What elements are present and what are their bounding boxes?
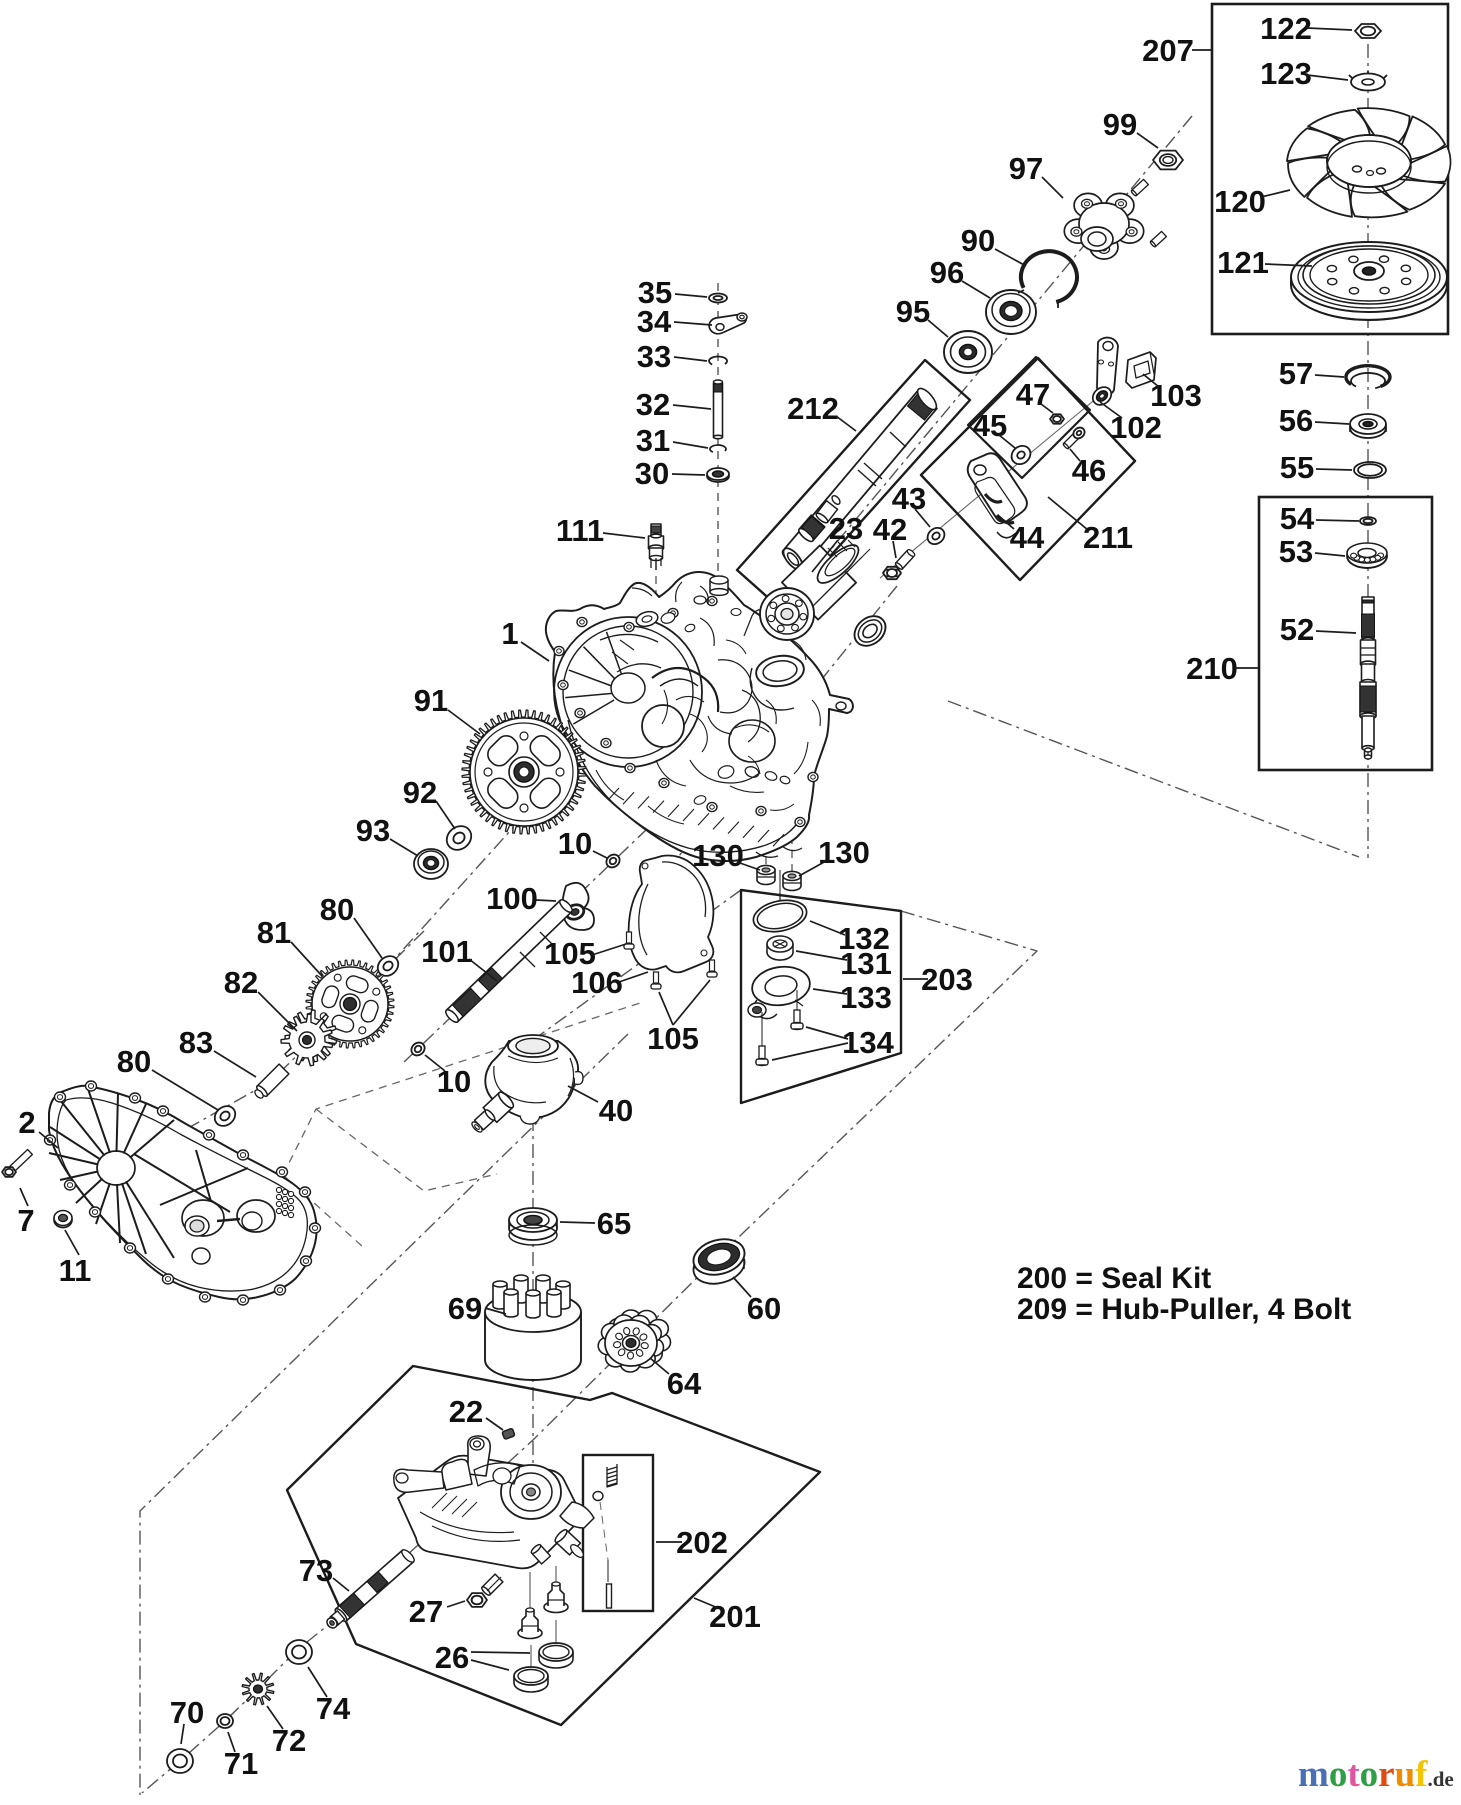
svg-text:53: 53 xyxy=(1279,534,1313,569)
svg-text:209 = Hub-Puller, 4 Bolt: 209 = Hub-Puller, 4 Bolt xyxy=(1017,1293,1351,1326)
svg-text:103: 103 xyxy=(1150,378,1202,413)
svg-text:74: 74 xyxy=(316,1691,351,1726)
svg-text:133: 133 xyxy=(840,980,892,1015)
svg-text:2: 2 xyxy=(18,1105,35,1140)
svg-text:122: 122 xyxy=(1260,11,1312,46)
svg-text:69: 69 xyxy=(448,1291,482,1326)
svg-text:82: 82 xyxy=(224,965,258,1000)
svg-text:203: 203 xyxy=(921,962,973,997)
svg-text:121: 121 xyxy=(1217,245,1269,280)
svg-text:71: 71 xyxy=(224,1746,258,1781)
svg-text:95: 95 xyxy=(896,294,930,329)
svg-text:52: 52 xyxy=(1280,612,1314,647)
svg-text:43: 43 xyxy=(892,481,926,516)
svg-text:1: 1 xyxy=(501,616,518,651)
svg-text:23: 23 xyxy=(829,511,863,546)
svg-text:64: 64 xyxy=(667,1366,702,1401)
svg-text:111: 111 xyxy=(556,513,604,548)
svg-text:123: 123 xyxy=(1260,56,1312,91)
svg-text:26: 26 xyxy=(435,1640,469,1675)
svg-text:134: 134 xyxy=(842,1025,894,1060)
svg-text:27: 27 xyxy=(409,1594,443,1629)
svg-text:210: 210 xyxy=(1186,651,1238,686)
svg-text:101: 101 xyxy=(421,934,473,969)
svg-text:65: 65 xyxy=(597,1206,631,1241)
svg-text:40: 40 xyxy=(599,1093,633,1128)
svg-text:211: 211 xyxy=(1083,520,1133,555)
svg-text:54: 54 xyxy=(1280,501,1315,536)
svg-text:55: 55 xyxy=(1280,450,1314,485)
svg-text:60: 60 xyxy=(747,1291,781,1326)
svg-text:44: 44 xyxy=(1010,520,1045,555)
svg-text:201: 201 xyxy=(709,1599,761,1634)
svg-text:31: 31 xyxy=(636,423,670,458)
svg-text:80: 80 xyxy=(320,892,354,927)
svg-text:120: 120 xyxy=(1214,184,1266,219)
svg-text:10: 10 xyxy=(558,826,592,861)
svg-text:105: 105 xyxy=(647,1021,699,1056)
svg-text:81: 81 xyxy=(257,915,291,950)
svg-text:212: 212 xyxy=(787,391,839,426)
svg-text:80: 80 xyxy=(117,1044,151,1079)
svg-text:22: 22 xyxy=(449,1394,483,1429)
svg-text:33: 33 xyxy=(637,339,671,374)
svg-text:73: 73 xyxy=(299,1553,333,1588)
svg-text:96: 96 xyxy=(930,255,964,290)
svg-text:130: 130 xyxy=(692,838,744,873)
svg-text:130: 130 xyxy=(818,835,870,870)
svg-text:30: 30 xyxy=(635,456,669,491)
svg-text:202: 202 xyxy=(676,1525,728,1560)
svg-text:7: 7 xyxy=(17,1203,34,1238)
svg-text:92: 92 xyxy=(403,775,437,810)
svg-text:72: 72 xyxy=(272,1723,306,1758)
svg-text:56: 56 xyxy=(1279,403,1313,438)
svg-text:83: 83 xyxy=(179,1025,213,1060)
svg-text:42: 42 xyxy=(873,512,907,547)
svg-text:106: 106 xyxy=(571,965,623,1000)
svg-text:34: 34 xyxy=(637,304,672,339)
svg-text:100: 100 xyxy=(486,881,538,916)
svg-text:200 = Seal Kit: 200 = Seal Kit xyxy=(1017,1262,1211,1295)
svg-text:91: 91 xyxy=(414,683,448,718)
svg-text:97: 97 xyxy=(1009,151,1043,186)
svg-text:32: 32 xyxy=(636,387,670,422)
svg-text:93: 93 xyxy=(356,813,390,848)
svg-text:99: 99 xyxy=(1103,107,1137,142)
svg-text:57: 57 xyxy=(1279,356,1313,391)
svg-text:11: 11 xyxy=(59,1253,92,1288)
svg-text:90: 90 xyxy=(961,223,995,258)
svg-text:207: 207 xyxy=(1142,33,1194,68)
svg-text:131: 131 xyxy=(840,946,892,981)
svg-text:70: 70 xyxy=(170,1695,204,1730)
